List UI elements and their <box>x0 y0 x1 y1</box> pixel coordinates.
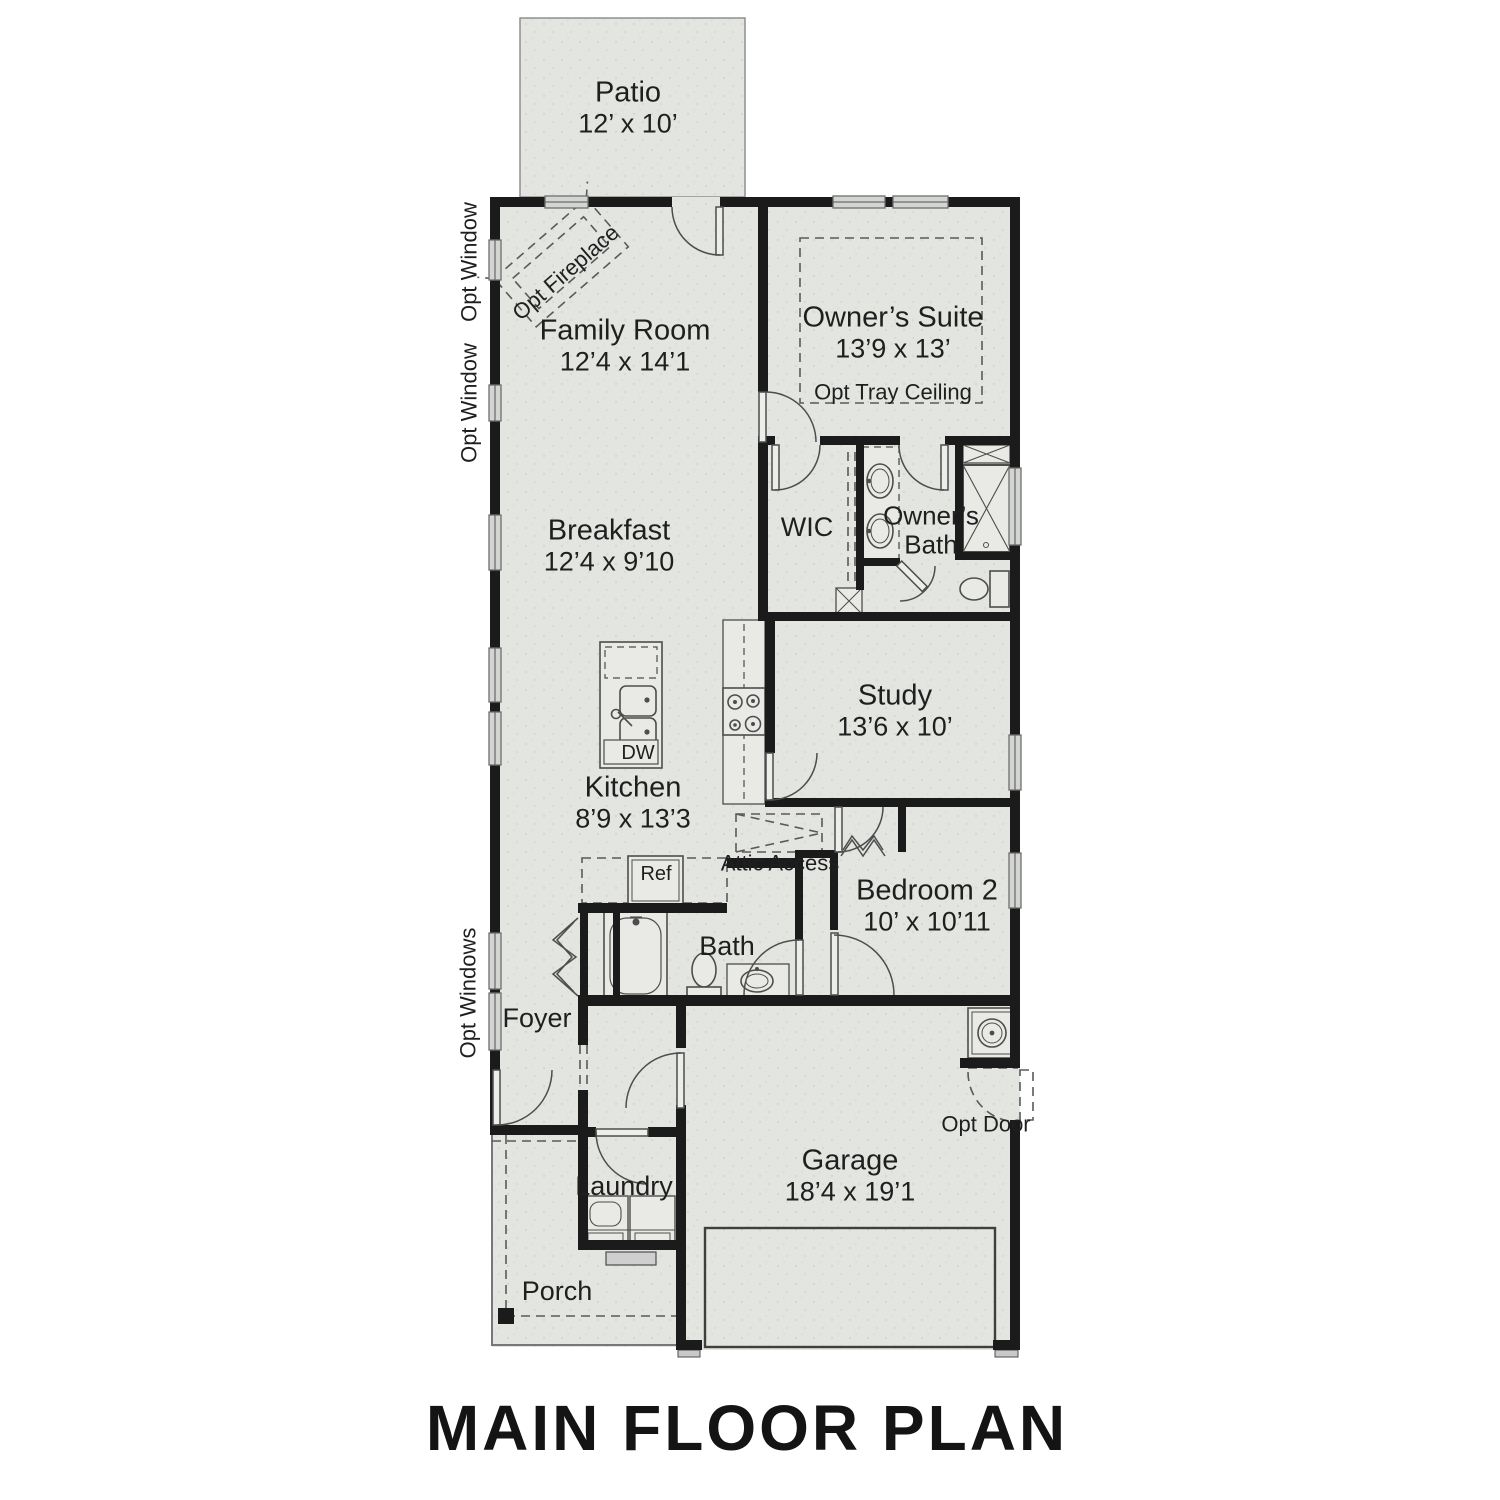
bath-vanity <box>727 964 789 998</box>
owners-suite-label: Owner’s Suite 13’9 x 13’ <box>802 302 983 365</box>
study-label: Study 13’6 x 10’ <box>837 680 953 743</box>
owners-bath-label: Owner’s Bath <box>879 501 983 558</box>
page-title: MAIN FLOOR PLAN <box>426 1391 1068 1465</box>
porch-label: Porch <box>522 1276 593 1306</box>
porch-post <box>498 1308 514 1324</box>
opt-windows-label: Opt Windows <box>457 928 482 1059</box>
opt-window-label-2: Opt Window <box>458 343 483 463</box>
wic-shelf <box>836 588 862 614</box>
patio-label: Patio 12’ x 10’ <box>578 77 678 140</box>
bath-label: Bath <box>699 931 755 961</box>
wic-label: WIC <box>781 512 833 542</box>
laundry-step <box>606 1252 656 1265</box>
opt-door-label: Opt Door <box>941 1113 1030 1138</box>
attic-access-label: Attic Access <box>721 852 840 877</box>
family-room-label: Family Room 12’4 x 14’1 <box>540 315 711 378</box>
opt-window-label-1: Opt Window <box>458 202 483 322</box>
breakfast-label: Breakfast 12’4 x 9’10 <box>544 515 675 578</box>
foyer-label: Foyer <box>502 1003 571 1033</box>
linen-closet <box>963 445 1010 463</box>
dw-label: DW <box>621 742 654 764</box>
floor-plan-page: Patio 12’ x 10’ Family Room 12’4 x 14’1 … <box>0 0 1500 1500</box>
kitchen-counter <box>723 620 765 804</box>
utility-sink <box>968 1008 1017 1058</box>
opt-tray-ceiling-label: Opt Tray Ceiling <box>814 381 972 406</box>
laundry-label: Laundry <box>575 1171 673 1201</box>
kitchen-label: Kitchen 8’9 x 13’3 <box>575 772 691 835</box>
floor-plan-drawing <box>0 0 1500 1500</box>
ref-label: Ref <box>640 863 671 885</box>
bedroom2-label: Bedroom 2 10’ x 10’11 <box>856 875 998 938</box>
garage-label: Garage 18’4 x 19’1 <box>785 1145 916 1208</box>
